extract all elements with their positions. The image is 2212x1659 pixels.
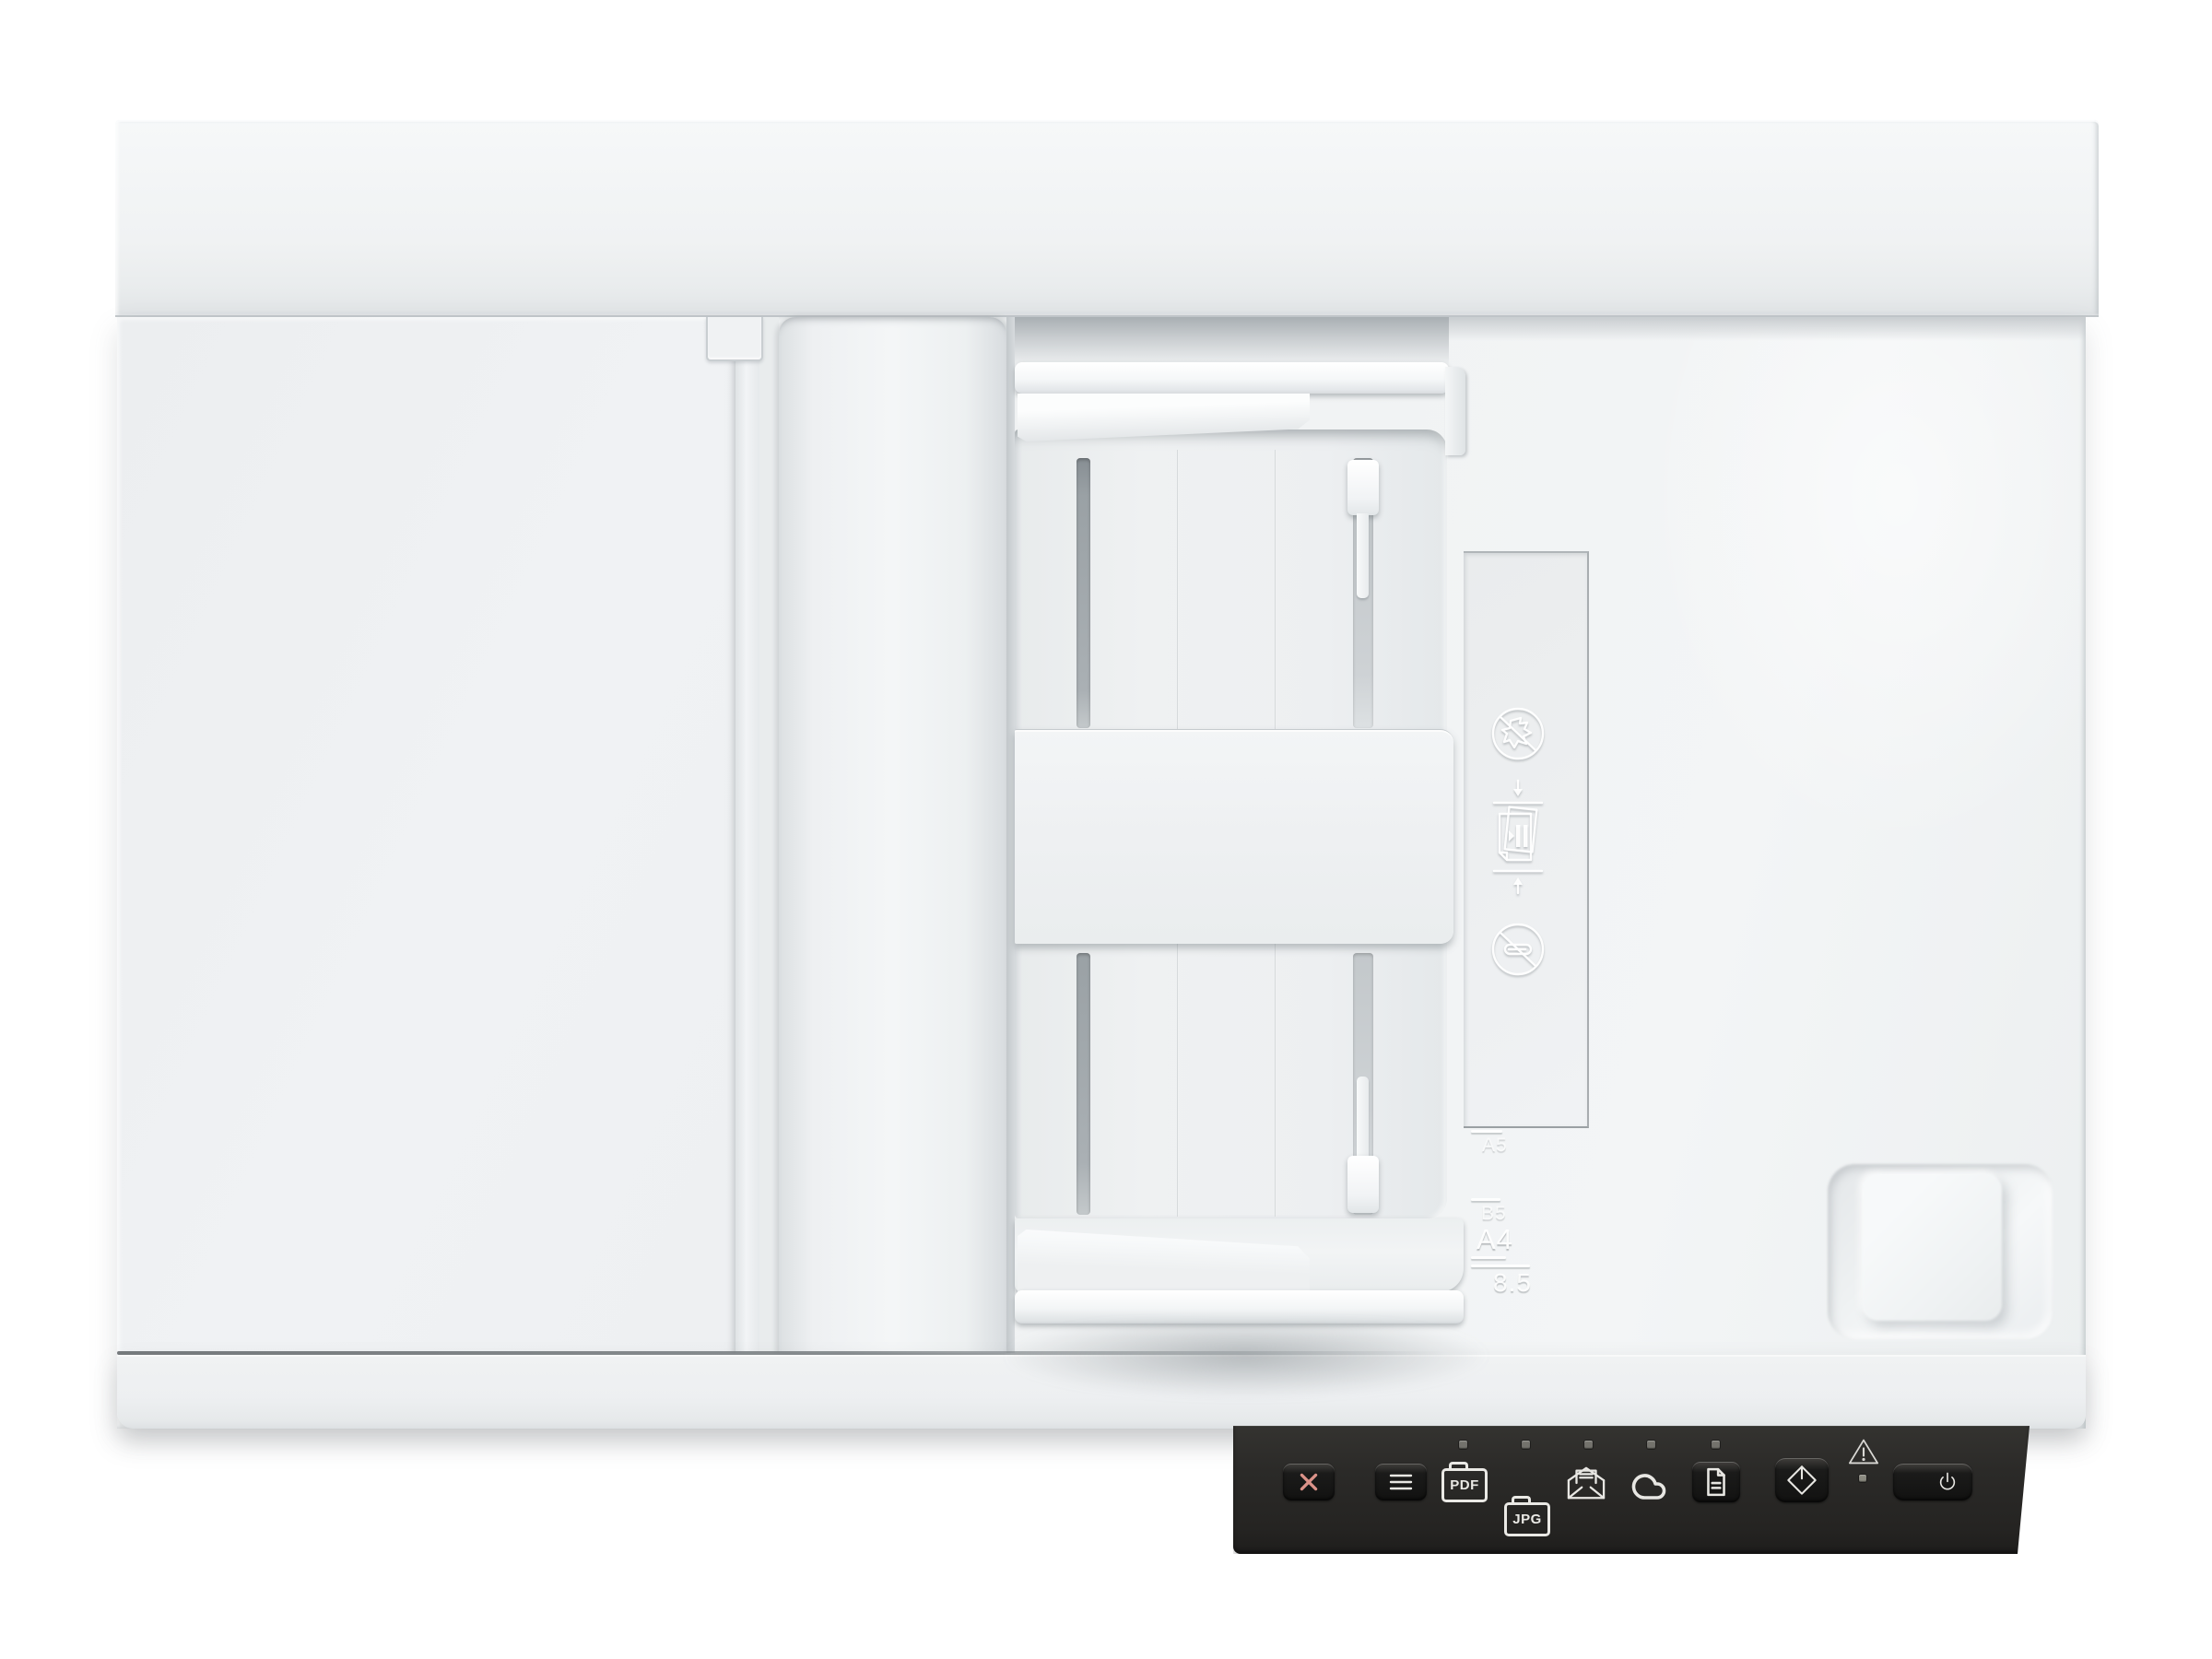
under-bar-recess-shadow: [1015, 317, 1449, 367]
jpg-label: JPG: [1512, 1512, 1542, 1527]
tray-extension-flap[interactable]: [1015, 729, 1453, 944]
load-originals-icon: [1474, 777, 1562, 897]
scale-tick: [1471, 1198, 1500, 1201]
status-led: [1859, 1475, 1866, 1482]
start-scan-button[interactable]: [1775, 1458, 1829, 1502]
power-button[interactable]: [1893, 1464, 1972, 1500]
hamburger-icon: [1387, 1471, 1415, 1493]
under-bar-shadow-right: [1449, 317, 2086, 341]
cancel-button[interactable]: [1283, 1464, 1335, 1500]
guide-slider-upper-stem[interactable]: [1357, 513, 1369, 598]
pdf-folder-icon[interactable]: PDF: [1441, 1468, 1488, 1502]
guide-slot-lower-left: [1077, 953, 1090, 1215]
email-led: [1584, 1441, 1593, 1449]
document-icon: [1704, 1467, 1728, 1497]
flatbed-lid[interactable]: [117, 317, 735, 1353]
scale-tick: [1471, 1265, 1530, 1267]
start-scan-icon: [1784, 1463, 1819, 1498]
cloud-icon[interactable]: [1626, 1470, 1672, 1503]
document-button[interactable]: [1692, 1462, 1740, 1502]
hinge-strip: [779, 317, 1006, 1353]
no-paperclips-icon: [1488, 920, 1547, 979]
body-square-emboss-inner: [1862, 1173, 2002, 1321]
guide-slot-upper-left: [1077, 458, 1090, 728]
front-apron: [117, 1355, 2086, 1429]
paper-guide-rail-top: [1015, 362, 1449, 394]
x-icon: [1301, 1475, 1315, 1488]
jpg-led: [1522, 1441, 1530, 1449]
scale-tick: [1471, 1256, 1506, 1259]
document-led: [1712, 1441, 1720, 1449]
paper-size-label: 8.5: [1493, 1268, 1532, 1298]
guide-slider-upper[interactable]: [1347, 460, 1379, 515]
no-damaged-paper-icon: [1488, 704, 1547, 763]
front-seam-line: [117, 1351, 1444, 1355]
control-panel: PDF JPG: [1233, 1426, 2030, 1554]
lid-rear-bar: [115, 120, 2099, 317]
scanner-device: A5 B5 A4 8.5 PDF JPG: [0, 0, 2212, 1659]
lid-hinge-gap: [759, 317, 779, 1353]
paper-size-label: B5: [1481, 1203, 1507, 1225]
lid-hinge-notch: [706, 317, 763, 361]
guide-slider-lower-stem[interactable]: [1357, 1077, 1369, 1159]
power-icon: [1934, 1468, 1961, 1496]
menu-button[interactable]: [1375, 1464, 1427, 1500]
pdf-label: PDF: [1450, 1477, 1479, 1493]
cloud-led: [1647, 1441, 1655, 1449]
hinge-tray-gap: [1006, 317, 1015, 1353]
paper-guide-rail-bottom: [1015, 1290, 1464, 1324]
warning-triangle-icon: [1847, 1437, 1880, 1466]
jpg-folder-icon[interactable]: JPG: [1504, 1502, 1550, 1536]
email-icon[interactable]: [1565, 1464, 1607, 1502]
pdf-led: [1459, 1441, 1467, 1449]
guide-slider-lower[interactable]: [1347, 1156, 1379, 1213]
scale-tick: [1471, 1130, 1502, 1133]
rail-corner-bracket: [1445, 367, 1465, 455]
lid-edge-bevel: [735, 317, 760, 1353]
paper-size-label: A4: [1477, 1223, 1513, 1256]
paper-size-label: A5: [1482, 1135, 1508, 1157]
